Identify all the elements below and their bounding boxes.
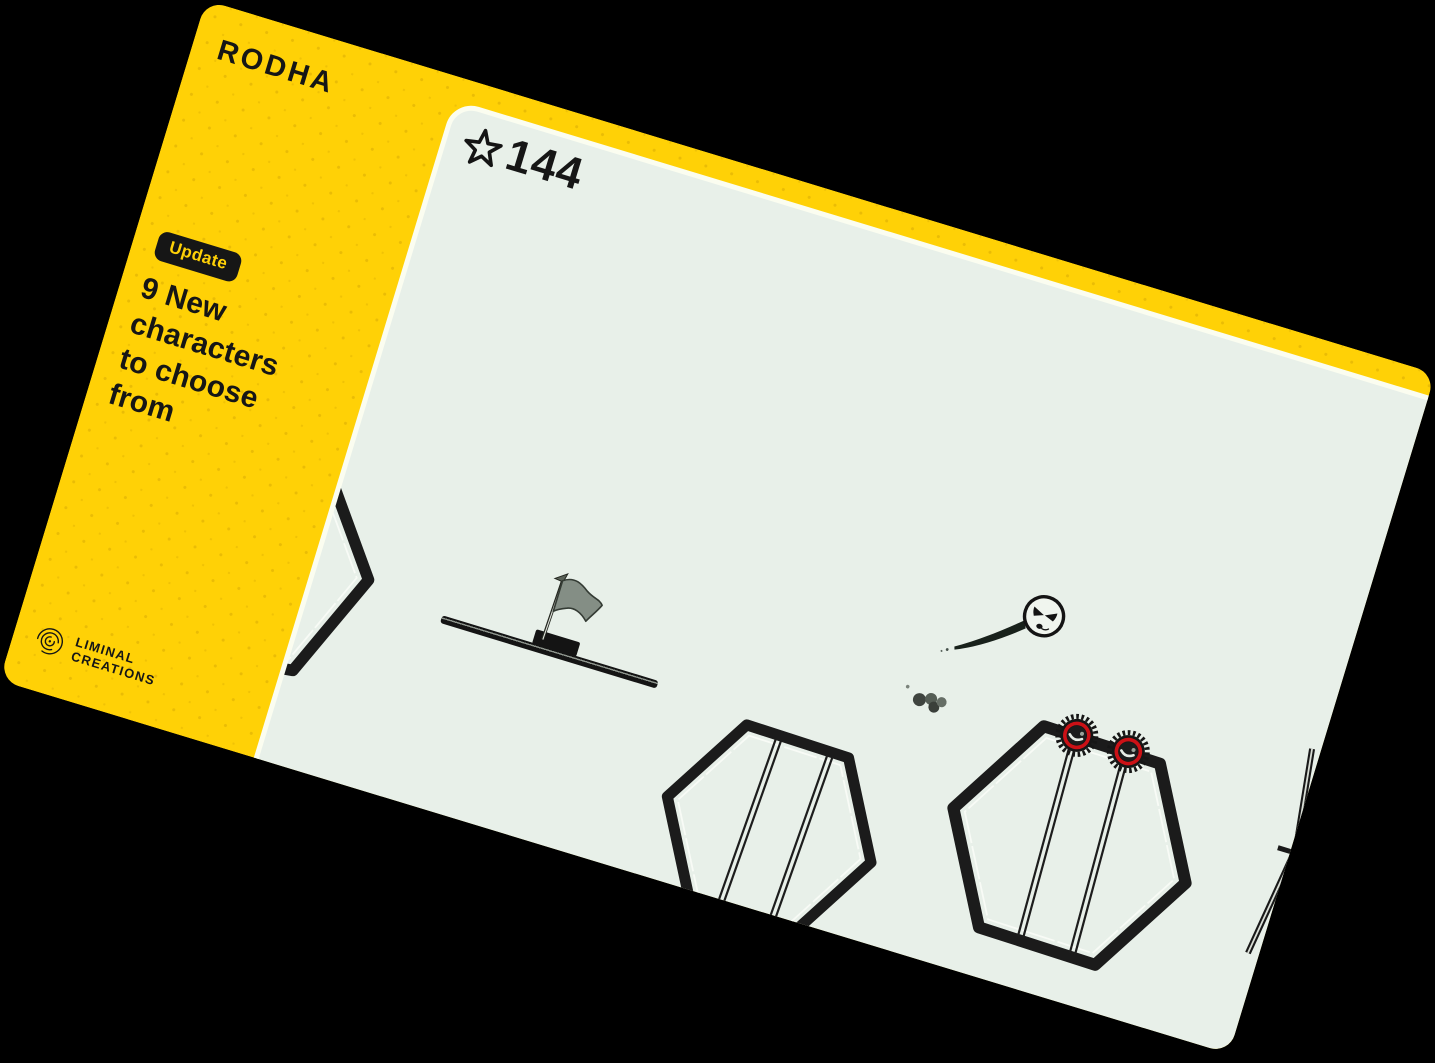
screen: RODHA Update 9 New characters to choose … bbox=[0, 0, 1435, 1063]
promo-headline: 9 New characters to choose from bbox=[104, 270, 377, 481]
rodha-logo[interactable]: RODHA bbox=[213, 34, 339, 101]
company-name: LIMINAL CREATIONS bbox=[69, 634, 161, 688]
saw-gear-left-icon bbox=[1053, 712, 1100, 759]
game-panel[interactable]: 144 bbox=[230, 99, 1435, 1054]
hexagon-struts bbox=[1012, 741, 1134, 954]
saw-gear-right-icon bbox=[1105, 728, 1152, 775]
company-logo[interactable]: LIMINAL CREATIONS bbox=[29, 620, 163, 690]
liminal-spiral-icon bbox=[29, 620, 71, 662]
hexagon-obstacle-middle bbox=[595, 655, 944, 1004]
hexagon-struts bbox=[717, 737, 833, 926]
star-count: 144 bbox=[500, 128, 590, 200]
game-window: RODHA Update 9 New characters to choose … bbox=[0, 0, 1435, 1054]
debris-dots bbox=[896, 676, 964, 727]
